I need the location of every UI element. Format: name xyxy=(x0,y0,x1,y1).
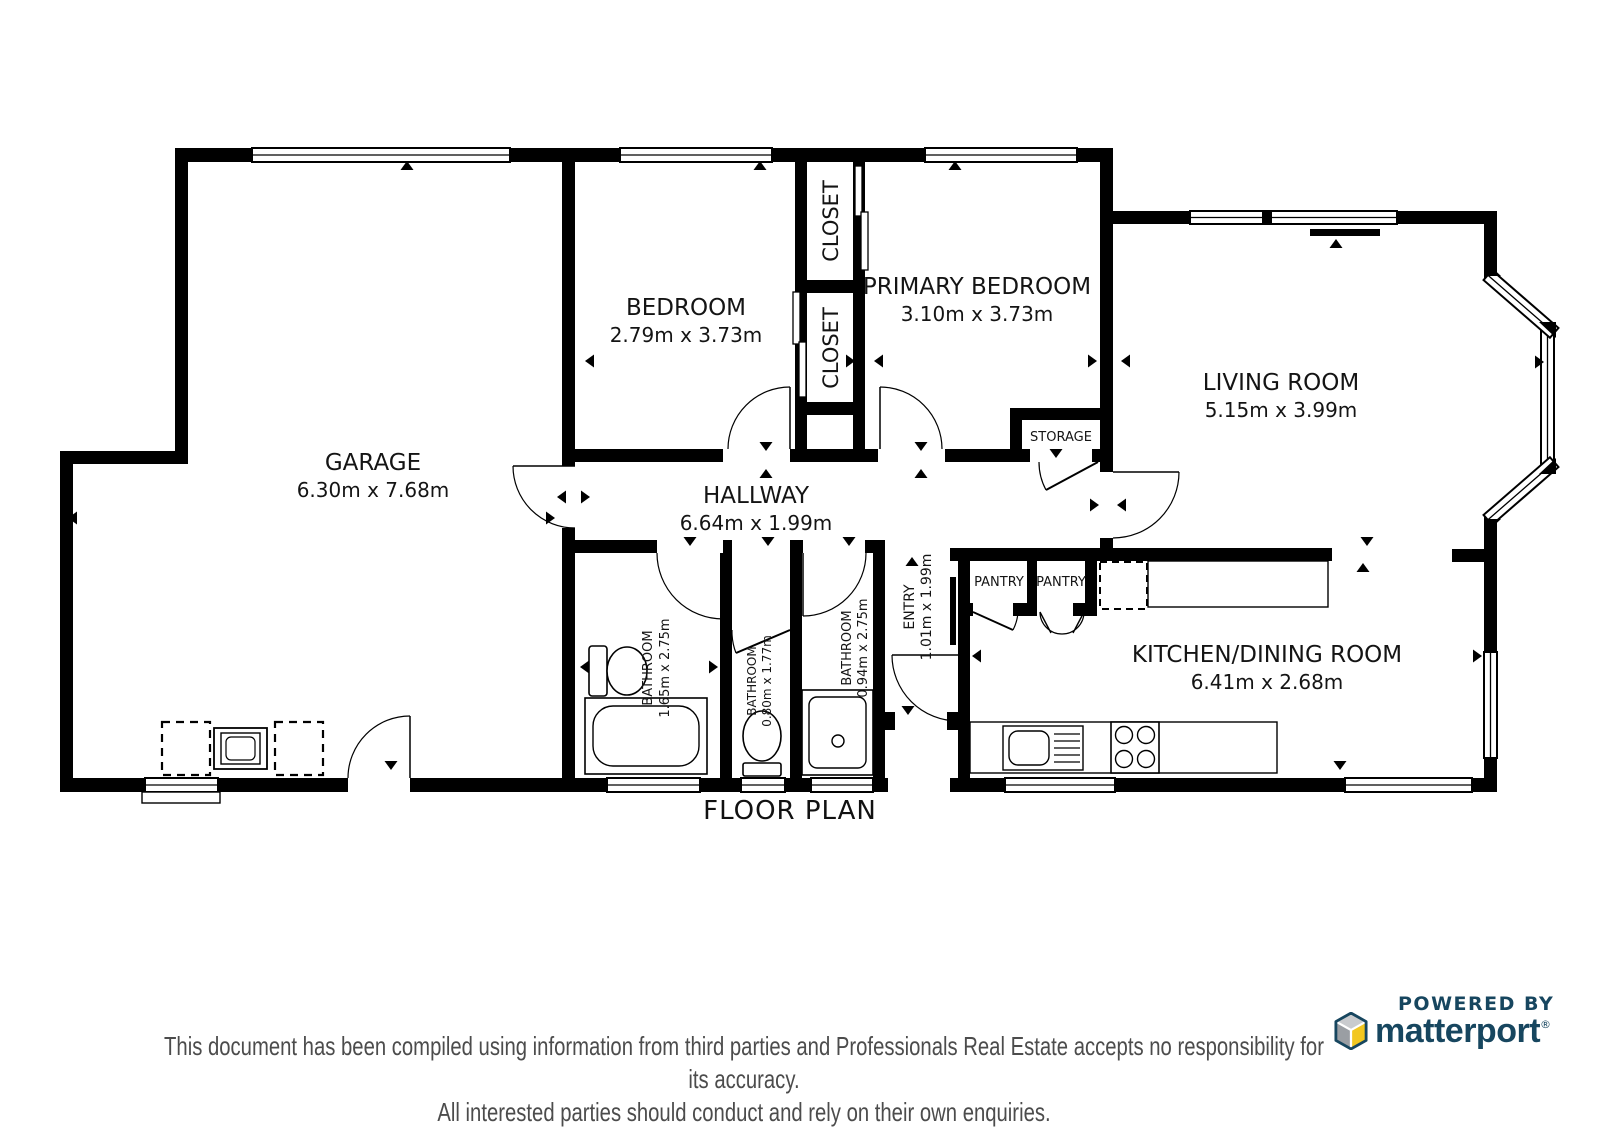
disclaimer-line2: All interested parties should conduct an… xyxy=(164,1096,1325,1129)
washer-icon xyxy=(214,728,267,769)
bathroom1-dims: 1.65m x 2.75m xyxy=(658,618,673,717)
bedroom-label: BEDROOM xyxy=(626,295,746,321)
exterior-walls xyxy=(60,148,1497,792)
page-title: FLOOR PLAN xyxy=(0,796,1580,826)
garage-exterior-door xyxy=(348,716,410,778)
bathroom1-door xyxy=(657,553,723,619)
interior-walls xyxy=(562,148,1380,792)
window-mullion xyxy=(1262,211,1272,224)
bathroom2-label: BATHROOM xyxy=(745,646,759,715)
disclaimer: This document has been compiled using in… xyxy=(164,1030,1325,1129)
kitchen-counter-top xyxy=(1148,561,1328,607)
entry-dims: 1.01m x 1.99m xyxy=(919,554,935,661)
bathroom2-dims: 0.80m x 1.77m xyxy=(760,635,774,727)
bedroom-dims: 2.79m x 3.73m xyxy=(610,323,763,347)
floor-plan-drawing: GARAGE 6.30m x 7.68m BEDROOM 2.79m x 3.7… xyxy=(0,0,1600,1131)
pantry-left-door xyxy=(973,612,1018,630)
pantry-left-label: PANTRY xyxy=(974,575,1024,590)
garage-label: GARAGE xyxy=(325,450,421,476)
brand-reg-mark: ® xyxy=(1540,1018,1551,1031)
hallway-label: HALLWAY xyxy=(703,483,810,509)
storage-label: STORAGE xyxy=(1030,430,1092,445)
floor-plan-page: GARAGE 6.30m x 7.68m BEDROOM 2.79m x 3.7… xyxy=(0,0,1600,1131)
entry-label: ENTRY xyxy=(902,584,918,630)
stove-icon xyxy=(1111,722,1159,773)
pantry-right-label: PANTRY xyxy=(1036,575,1086,590)
entry-front-door xyxy=(892,655,958,721)
storage-door xyxy=(1039,462,1098,490)
shower-icon xyxy=(802,690,873,775)
bathroom3-label: BATHROOM xyxy=(840,610,855,685)
garage-dims: 6.30m x 7.68m xyxy=(297,478,450,502)
bathroom1-label: BATHROOM xyxy=(641,630,656,705)
fridge-placeholder xyxy=(1100,562,1147,609)
bathroom3-dims: 0.94m x 2.75m xyxy=(856,598,871,697)
living-room-label: LIVING ROOM xyxy=(1203,370,1360,396)
brand-name: matterport xyxy=(1375,1012,1540,1050)
hallway-dims: 6.64m x 1.99m xyxy=(680,511,833,535)
living-room-dims: 5.15m x 3.99m xyxy=(1205,398,1358,422)
toilet-icon xyxy=(589,646,647,696)
disclaimer-line1: This document has been compiled using in… xyxy=(164,1030,1325,1096)
closet-top-label: CLOSET xyxy=(819,180,843,262)
primary-bedroom-label: PRIMARY BEDROOM xyxy=(863,274,1091,300)
primary-bedroom-door xyxy=(880,387,942,449)
matterport-logo: matterport® xyxy=(1334,1012,1551,1050)
bathtub-icon xyxy=(585,698,707,774)
kitchen-dining-label: KITCHEN/DINING ROOM xyxy=(1132,642,1402,668)
kitchen-dining-dims: 6.41m x 2.68m xyxy=(1191,670,1344,694)
primary-bedroom-dims: 3.10m x 3.73m xyxy=(901,302,1054,326)
closet-bottom-label: CLOSET xyxy=(819,307,843,389)
matterport-cube-icon xyxy=(1334,1012,1368,1050)
sink-icon xyxy=(1003,726,1083,770)
bedroom-door xyxy=(728,387,790,449)
